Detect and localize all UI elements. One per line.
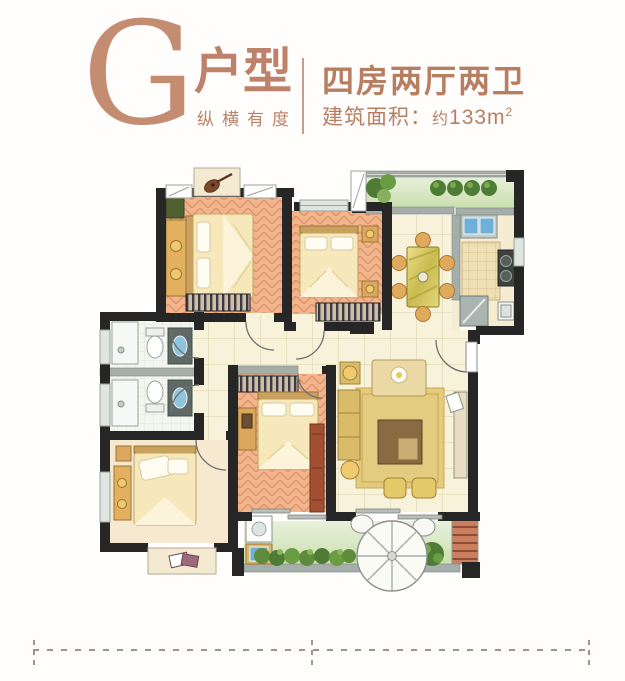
balcony-slider-icon [288, 515, 326, 519]
bedroom-4 [114, 446, 196, 525]
area-label: 建筑面积： [322, 106, 432, 129]
coffee-table-icon [378, 420, 422, 464]
header-divider [302, 58, 304, 134]
bed-icon [300, 226, 358, 297]
dining-table-icon [407, 247, 439, 307]
kitchen-sink-icon [461, 215, 497, 238]
dresser-icon [166, 220, 186, 296]
area-approx: 约 [432, 111, 449, 128]
unit-type-label: 户型 [194, 42, 292, 101]
bay-window-guitar [194, 168, 240, 196]
building-area: 建筑面积：约133m2 [322, 101, 513, 131]
balcony-slider-icon [356, 509, 400, 513]
unit-tagline: 纵横有度 [197, 105, 297, 130]
bed-icon [258, 392, 318, 469]
layout-label: 四房两厅两卫 [322, 56, 526, 102]
dashed-tick-middle [311, 635, 313, 665]
dashed-tick-right [588, 635, 590, 665]
fridge-icon [460, 296, 488, 326]
stool-icon [384, 478, 406, 498]
shower-icon [112, 322, 138, 364]
nightstand-icon [116, 446, 131, 461]
area-value: 133m [449, 106, 506, 129]
bay-window-books [148, 548, 216, 574]
entrance-door-leaf [466, 342, 477, 372]
wardrobe-icon [316, 303, 380, 321]
plant-box-icon [166, 198, 184, 218]
toilet-icon [146, 328, 164, 358]
wardrobe-icon [186, 294, 250, 311]
balcony-planter-bricks [452, 521, 478, 564]
unit-letter: G [82, 4, 195, 146]
bedroom-1 [166, 198, 253, 311]
kitchen-tile-mat [462, 242, 500, 300]
basin-icon [498, 302, 514, 320]
window-icon [100, 384, 110, 426]
window-icon [100, 330, 110, 364]
toilet-icon [146, 381, 164, 412]
floorplan-page: G 户型 纵横有度 四房两厅两卫 建筑面积：约133m2 [0, 0, 625, 681]
window-icon [100, 472, 110, 522]
bathroom-1 [112, 322, 192, 364]
stool-icon [412, 478, 436, 498]
shower-icon [112, 380, 138, 426]
stove-icon [498, 250, 515, 286]
umbrella-icon [357, 521, 427, 591]
area-sup: 2 [506, 105, 514, 119]
balcony-slider-icon [252, 509, 290, 513]
dashed-tick-left [33, 635, 35, 665]
wardrobe-icon [238, 376, 298, 392]
dresser-icon [114, 466, 131, 520]
window-icon [514, 238, 524, 266]
bed-icon [134, 446, 196, 525]
bed-icon [186, 214, 253, 298]
